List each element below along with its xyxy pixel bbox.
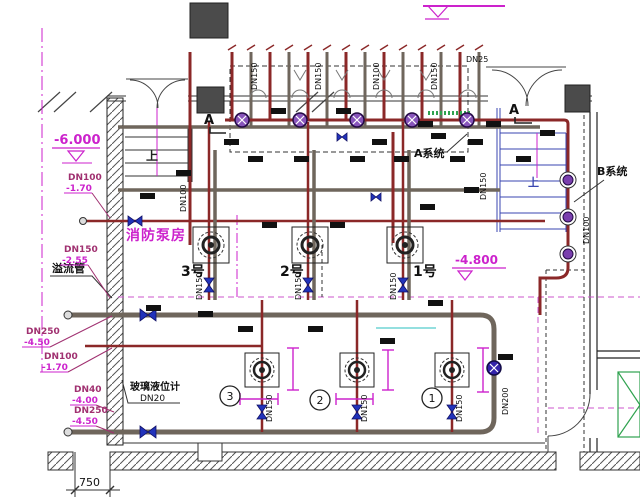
door-leaf-left-2: [157, 80, 185, 108]
up-label-left: 上: [146, 148, 158, 163]
svg-text:DN100: DN100: [68, 173, 102, 183]
suction-loop: [70, 315, 494, 432]
column-mid: [197, 87, 224, 113]
circled-1: 1: [422, 388, 442, 408]
svg-text:-6.000: -6.000: [54, 133, 101, 148]
b-system-fittings: [560, 172, 576, 262]
left-tag-1: DN100 -1.70: [64, 173, 110, 218]
svg-text:-4.800: -4.800: [455, 253, 498, 267]
water-level-symbol: [423, 6, 505, 19]
cad-drawing: 750 上 上: [0, 0, 640, 501]
pump-2: [292, 227, 328, 263]
section-marker-top: A: [204, 113, 226, 133]
room-title: 消防泵房: [126, 227, 186, 244]
svg-text:DN100: DN100: [179, 185, 188, 212]
svg-text:DN150: DN150: [250, 63, 259, 90]
svg-text:A系统: A系统: [414, 146, 445, 160]
left-wall: [107, 98, 123, 445]
svg-text:A: A: [204, 113, 214, 128]
pipe-cap-3: [80, 218, 87, 225]
svg-text:DN150: DN150: [265, 395, 274, 422]
svg-text:DN100: DN100: [582, 217, 591, 244]
pipe-cap-1: [64, 311, 72, 319]
loop-valve: [487, 361, 501, 375]
svg-text:DN150: DN150: [430, 63, 439, 90]
floor-step: [198, 443, 222, 461]
svg-text:DN150: DN150: [294, 273, 303, 300]
circled-2: 2: [310, 390, 330, 410]
svg-text:DN150: DN150: [360, 395, 369, 422]
svg-text:2: 2: [317, 394, 324, 407]
column-right: [565, 85, 590, 112]
svg-text:3: 3: [227, 390, 234, 403]
green-equipment: [618, 372, 640, 437]
svg-text:DN150: DN150: [479, 173, 488, 200]
svg-text:DN150: DN150: [64, 245, 98, 255]
svg-text:A: A: [509, 103, 519, 118]
system-b-label: B系统: [574, 164, 627, 202]
right-wall: [590, 112, 640, 452]
svg-text:B系统: B系统: [597, 164, 627, 178]
svg-text:DN150: DN150: [314, 63, 323, 90]
left-tag-3: DN250 -4.50: [22, 316, 112, 348]
column-top: [190, 3, 228, 38]
svg-text:玻璃液位计: 玻璃液位计: [130, 380, 180, 393]
gauge-label: 玻璃液位计 DN20: [122, 380, 180, 404]
door-leaf-right-1: [492, 70, 528, 106]
svg-text:DN250: DN250: [26, 327, 60, 337]
svg-text:DN150: DN150: [455, 395, 464, 422]
floor-slab: [48, 443, 640, 470]
elevation-left: -6.000: [52, 133, 101, 163]
svg-text:DN100: DN100: [44, 352, 78, 362]
footing-dim-text: 750: [79, 476, 100, 489]
svg-text:1: 1: [429, 392, 436, 405]
svg-text:DN40: DN40: [74, 385, 102, 395]
elevation-right: -4.800: [452, 253, 506, 280]
circled-3: 3: [220, 386, 240, 406]
overflow-label: 溢流管: [50, 261, 112, 298]
svg-text:DN100: DN100: [372, 63, 381, 90]
svg-text:DN25: DN25: [466, 55, 488, 64]
door-leaf-left-1: [130, 80, 158, 108]
door-leaf-right-2: [526, 70, 562, 106]
pipe-cap-2: [64, 428, 72, 436]
riser-break-ticks: [228, 45, 483, 50]
door-corridor: [548, 394, 590, 436]
svg-text:DN200: DN200: [501, 388, 510, 415]
fire-pump-room-plan: 750 上 上: [0, 0, 640, 501]
pump-1-label: 1号: [413, 264, 437, 280]
svg-text:DN150: DN150: [389, 273, 398, 300]
svg-text:DN250: DN250: [74, 406, 108, 416]
pump-3: [193, 227, 229, 263]
pumps: [193, 227, 469, 387]
walls: 750: [38, 3, 640, 497]
up-label-right: 上: [528, 175, 539, 189]
svg-text:DN150: DN150: [195, 273, 204, 300]
left-tag-4: DN100 -1.70: [40, 348, 112, 373]
